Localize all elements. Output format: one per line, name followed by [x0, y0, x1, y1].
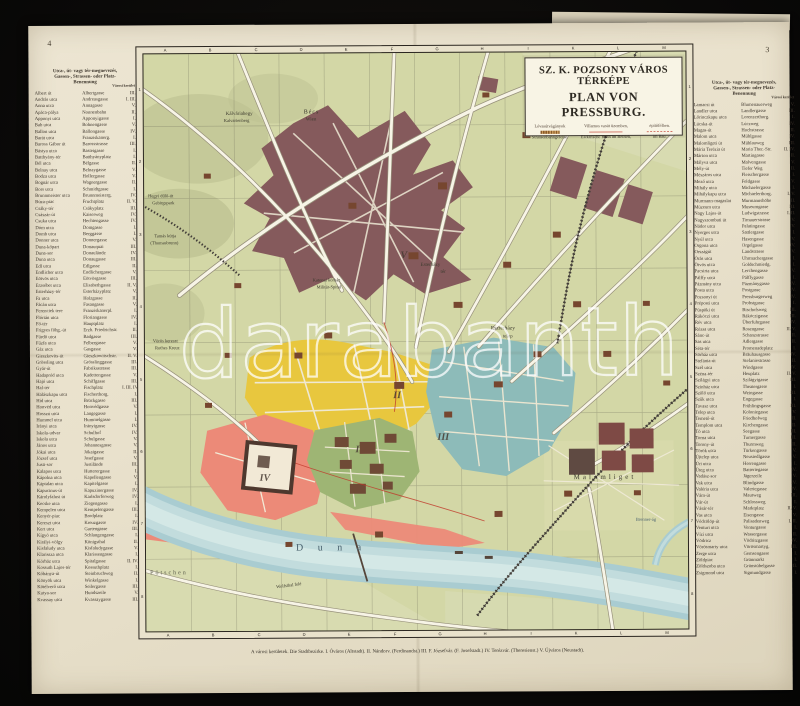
grid-letter: K — [566, 632, 586, 635]
street-name-hu: Zsigmond utca — [696, 569, 744, 576]
grid-number: 3 — [689, 215, 692, 248]
map-label: (Thomasbrunn) — [150, 241, 178, 246]
grid-letter: F — [381, 48, 401, 51]
street-name-de: Promenadeplatz — [742, 345, 780, 352]
map-label: Pötschen — [150, 570, 188, 576]
grid-letter: E — [339, 633, 359, 636]
map-label: III — [437, 433, 449, 443]
map-label: Eszterházy — [491, 326, 515, 332]
district-column-header: Városi kerület — [694, 96, 795, 101]
grid-letter: C — [245, 48, 265, 51]
map-label: I — [355, 445, 359, 455]
grid-letter: H — [472, 47, 492, 50]
grid-letter: E — [336, 48, 356, 51]
map-label: Bécs — [304, 109, 320, 115]
index-rows-left: Albert út Albertgasse III. András utca A… — [35, 89, 139, 603]
map-label: Brenner-ág — [636, 518, 656, 523]
street-name-hu: Kvassay utca — [37, 596, 85, 603]
grid-letter: D — [291, 48, 311, 51]
street-name-hu: Séta-tér — [695, 345, 743, 352]
index-row: Kvassay utca Kvassaygasse III. — [37, 596, 138, 603]
legend: Lóvasútvágányok Villamos vasút üzemben, … — [526, 124, 682, 140]
map-label: Katonai kórház — [313, 278, 341, 283]
grid-letter: M — [657, 631, 677, 634]
grid-number: 3 — [139, 218, 142, 251]
district-caption: A városi kerületek. Die Stadtbezirke. I.… — [139, 647, 697, 656]
grid-number: 1 — [688, 70, 691, 103]
map-label: II — [393, 391, 401, 401]
page-number-right: 3 — [765, 45, 769, 54]
street-index-left: Utca-, út- vagy tér-megnevezés, Gassen-,… — [34, 67, 138, 634]
tram-under-construction-symbol — [638, 129, 682, 133]
map-label: Militär-Spital — [317, 285, 341, 290]
street-name-de: Sigmundgasse — [744, 569, 782, 576]
grid-number: 2 — [139, 146, 142, 179]
legend-label-de: Strassenbahngeleise. — [526, 135, 574, 140]
map-label: V — [400, 251, 407, 261]
legend-label-de: im Bau. — [638, 134, 682, 139]
map-label: D u n a — [296, 543, 367, 553]
map-frame: ABCDEFGHIKLM ABCDEFGHIKLM 12345678 12345… — [135, 44, 696, 640]
map-label: Gebirgspark — [152, 201, 174, 206]
district-caption-wrap: A városi kerületek. Die Stadtbezirke. I.… — [139, 647, 697, 662]
grid-letter: I — [521, 632, 541, 635]
street-name-de: Kvassaygasse — [85, 596, 123, 603]
grid-number: 7 — [140, 508, 143, 541]
legend-label-hu: Lóvasútvágányok — [526, 124, 574, 129]
index-row: Zsigmond utca Sigmundgasse I. — [696, 569, 797, 576]
map-label: Kálváriahegy — [226, 112, 253, 117]
city-map: BécsWienKálváriahegyKalvarienbergHegyi d… — [142, 51, 689, 633]
tram-in-service-symbol — [574, 130, 638, 134]
map-title-hungarian: SZ. K. POZSONY VÁROS TÉRKÉPE — [525, 65, 681, 88]
grid-letter: L — [608, 47, 628, 50]
index-header-left: Utca-, út- vagy tér-megnevezés, Gassen-,… — [34, 67, 135, 88]
map-label: Vörös kereszt — [153, 339, 178, 344]
grid-letter: D — [294, 633, 314, 636]
district-numeral-cell: I. — [782, 569, 797, 575]
grid-letter: A — [158, 634, 178, 637]
map-sheet-paper: 4 3 Utca-, út- vagy tér-megnevezés, Gass… — [28, 22, 792, 694]
index-row: Séta-tér Promenadeplatz I. — [695, 345, 796, 352]
grid-number: 5 — [690, 360, 693, 393]
map-label: Wien — [306, 117, 317, 122]
grid-number: 1 — [138, 73, 141, 106]
legend-label-de: Elektrische Bahn im Betrieb, — [574, 135, 638, 140]
index-rows-right: Lamacsi út Blumenauerweg V. Landler utca… — [694, 101, 798, 576]
horse-tram-symbol — [526, 130, 574, 134]
grid-letter: F — [385, 633, 405, 636]
map-title-german: PLAN VON PRESSBURG. — [526, 90, 682, 121]
district-numeral-cell: III. — [123, 596, 138, 602]
map-label: Esterházy — [421, 263, 441, 268]
grid-letter: H — [475, 632, 495, 635]
map-label: Hegyi dűlő-út — [148, 194, 173, 199]
grid-letter: I — [517, 47, 537, 50]
grid-number: 8 — [141, 580, 144, 613]
district-column-header: Városi kerület — [35, 84, 136, 89]
grid-number: 5 — [140, 363, 143, 396]
map-label: telep — [503, 334, 513, 339]
title-cartouche: SZ. K. POZSONY VÁROS TÉRKÉPE PLAN VON PR… — [524, 57, 682, 137]
grid-letter: M — [653, 46, 673, 49]
grid-letter: G — [427, 47, 447, 50]
grid-letter: C — [249, 633, 269, 636]
grid-letter: B — [203, 634, 223, 637]
grid-number: 8 — [691, 577, 694, 610]
grid-number: 4 — [139, 290, 142, 323]
map-label: tér — [441, 270, 446, 275]
map-label: Kalvarienberg — [224, 119, 250, 124]
map-label: IV — [260, 474, 271, 484]
map-label: Tamás kútja — [154, 234, 176, 239]
grid-letter: L — [611, 631, 631, 634]
grid-letter: A — [155, 49, 175, 52]
grid-number: 2 — [689, 143, 692, 176]
street-index-right: Utca-, út- vagy tér-megnevezés, Gassen-,… — [694, 79, 798, 646]
grid-number: 6 — [690, 432, 693, 465]
grid-number: 4 — [689, 288, 692, 321]
grid-letter: K — [563, 47, 583, 50]
map-label: Malomliget — [574, 474, 637, 481]
grid-letter: G — [430, 632, 450, 635]
index-header-right: Utca-, út- vagy tér-megnevezés, Gassen-,… — [694, 79, 795, 100]
grid-letter: B — [200, 49, 220, 52]
legend-label-hu: építőfélben. — [638, 124, 682, 129]
grid-number: 6 — [140, 435, 143, 468]
page-number-left: 4 — [47, 39, 51, 48]
grid-number: 7 — [690, 505, 693, 538]
map-label: Rothes Kreuz — [155, 346, 180, 351]
legend-label-hu: Villamos vasút üzemben, — [574, 124, 638, 129]
